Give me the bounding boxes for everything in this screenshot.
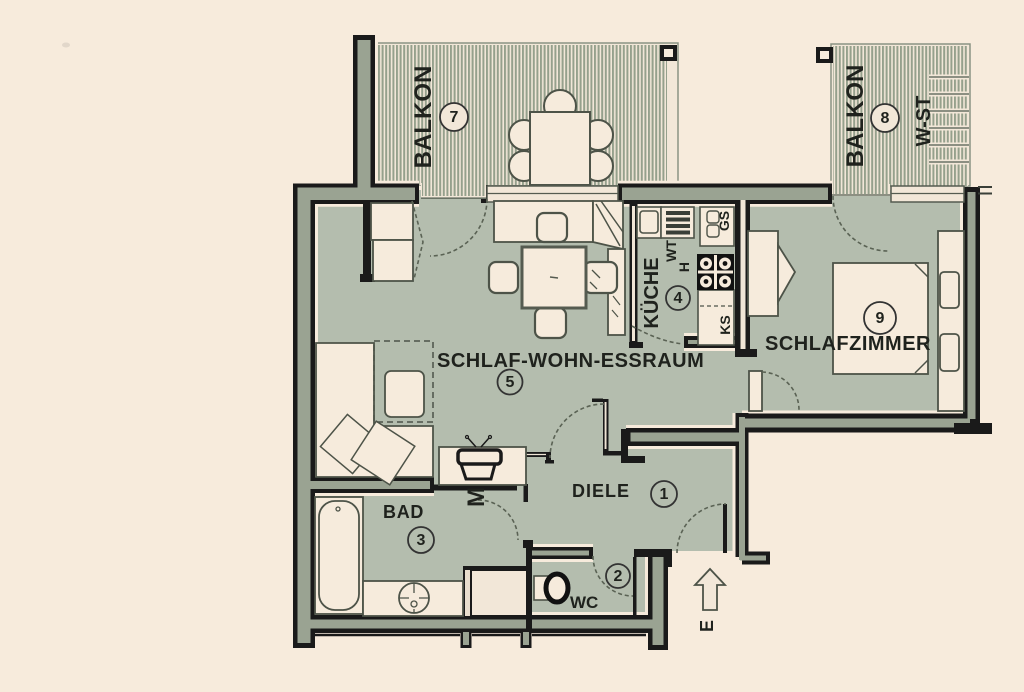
svg-text:2: 2 [614,568,623,585]
svg-text:GS: GS [716,211,732,231]
svg-text:BALKON: BALKON [842,65,869,168]
svg-text:E: E [697,620,717,632]
svg-text:BALKON: BALKON [410,66,437,169]
svg-text:4: 4 [674,290,683,307]
svg-text:5: 5 [506,374,515,391]
svg-text:SCHLAF-WOHN-ESSRAUM: SCHLAF-WOHN-ESSRAUM [437,350,704,372]
svg-text:1: 1 [660,486,669,503]
svg-text:KÜCHE: KÜCHE [640,257,663,328]
svg-text:WT: WT [663,240,679,262]
svg-text:H: H [676,262,692,272]
svg-text:BAD: BAD [383,502,424,522]
svg-text:DIELE: DIELE [572,481,630,501]
svg-text:WC: WC [570,593,598,612]
svg-text:M: M [463,487,490,507]
svg-text:KS: KS [717,315,733,334]
svg-text:7: 7 [450,109,459,126]
svg-text:8: 8 [881,110,890,127]
svg-text:W-ST: W-ST [913,96,935,147]
svg-text:9: 9 [876,310,885,327]
svg-text:3: 3 [417,532,426,549]
svg-text:SCHLAFZIMMER: SCHLAFZIMMER [765,333,931,355]
